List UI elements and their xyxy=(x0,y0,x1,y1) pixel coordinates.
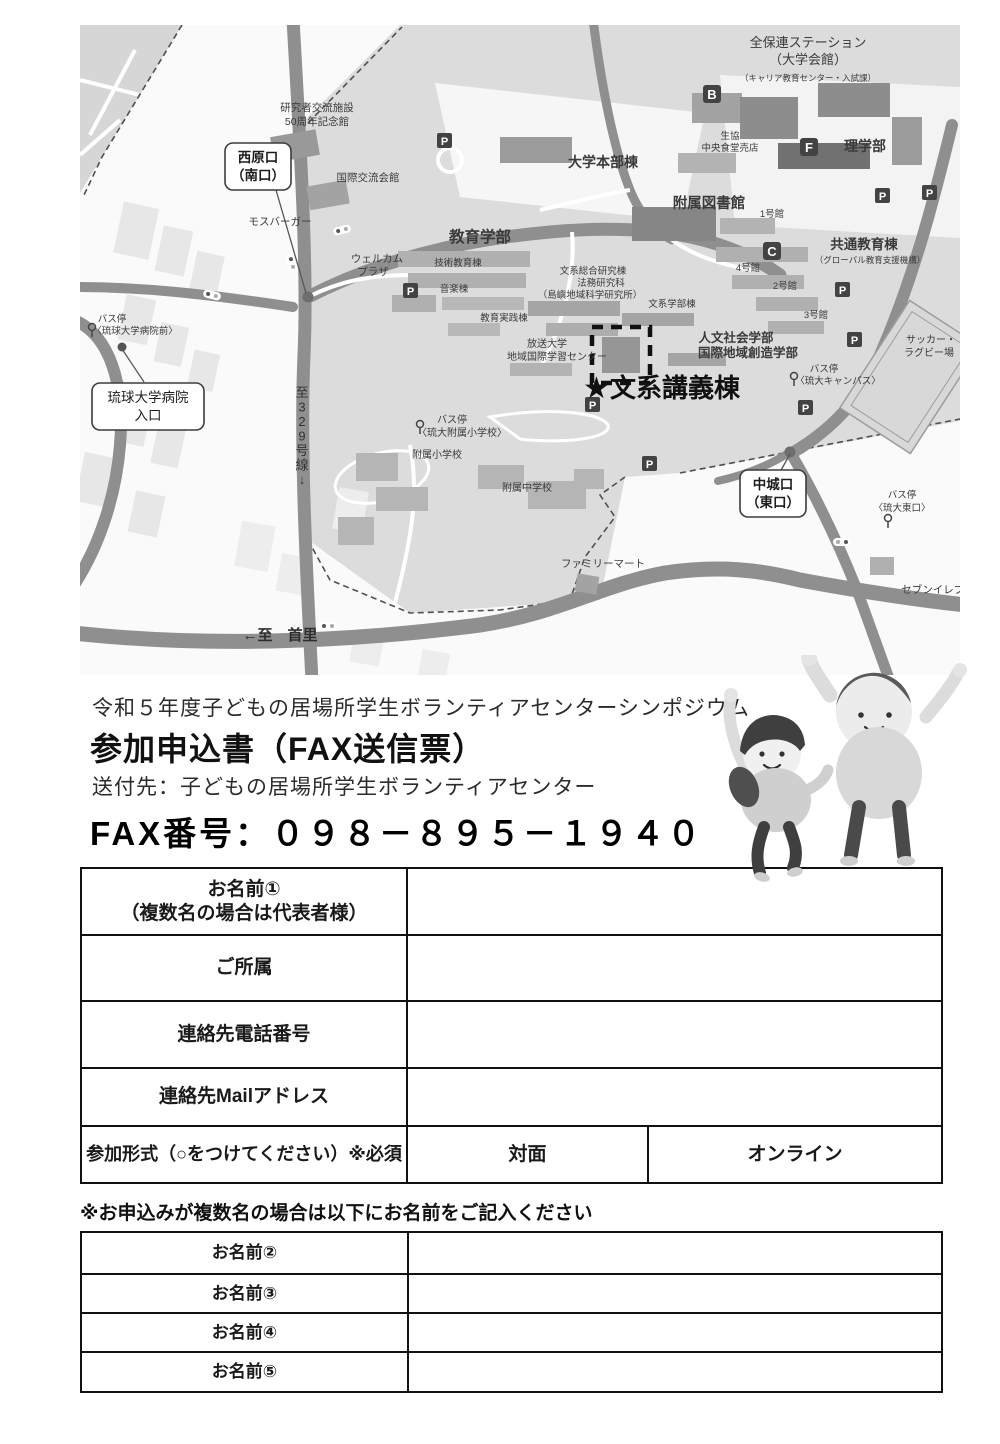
input-cell-name3[interactable] xyxy=(409,1275,941,1312)
svg-text:P: P xyxy=(926,188,933,200)
map-label: プラザ xyxy=(357,266,389,278)
map-label: 国際地域創造学部 xyxy=(698,345,799,360)
svg-text:西原口: 西原口 xyxy=(238,150,279,165)
svg-text:C: C xyxy=(767,244,777,259)
table-row: お名前③ xyxy=(82,1273,941,1312)
parking-icon: P xyxy=(403,283,418,298)
map-label: 共通教育棟 xyxy=(830,236,898,252)
map-label: 教育学部 xyxy=(449,227,512,246)
map-label: 附属小学校 xyxy=(412,448,462,461)
svg-text:（南口）: （南口） xyxy=(231,167,285,183)
map-label: 中央食堂売店 xyxy=(701,142,758,154)
gate-label-box: 琉球大学病院入口 xyxy=(92,383,204,430)
svg-text:P: P xyxy=(851,335,858,347)
map-label: 2号館 xyxy=(773,280,797,292)
venue-building xyxy=(602,337,640,373)
campus-access-map: 全保連ステーション（大学会館）（キャリア教育センター・入試課）理学部生協中央食堂… xyxy=(80,25,960,675)
table-row: お名前② xyxy=(82,1233,941,1273)
map-label: 文系総合研究棟 xyxy=(560,265,627,277)
field-label-name4: お名前④ xyxy=(82,1314,409,1351)
map-label: 〈琉大キャンパス〉 xyxy=(795,375,881,387)
table-row: 連絡先電話番号 xyxy=(82,1000,941,1067)
children-illustration xyxy=(712,655,970,887)
svg-text:P: P xyxy=(802,403,809,415)
map-label: 附属図書館 xyxy=(673,194,746,212)
map-label: 〈琉球大学病院前〉 xyxy=(92,325,178,337)
map-label: 研究者交流施設 xyxy=(280,101,354,114)
map-label: バス停 xyxy=(98,313,127,325)
parking-icon: P xyxy=(875,188,890,203)
map-label: （島嶼地域科学研究所） xyxy=(538,289,643,301)
svg-text:F: F xyxy=(805,140,813,155)
field-label-name1: お名前① （複数名の場合は代表者様） xyxy=(82,869,408,934)
field-label-participation: 参加形式（○をつけてください）※必須 xyxy=(82,1127,408,1182)
table-row: お名前④ xyxy=(82,1312,941,1351)
input-cell-name5[interactable] xyxy=(409,1353,941,1391)
input-cell-phone[interactable] xyxy=(408,1002,941,1067)
table-row: 参加形式（○をつけてください）※必須 対面 オンライン xyxy=(82,1125,941,1182)
map-label: サッカー・ xyxy=(906,334,956,346)
multiple-names-note: ※お申込みが複数名の場合は以下にお名前をご記入ください xyxy=(80,1198,592,1225)
map-label: ウェルカム xyxy=(351,253,403,265)
map-label: 教育実践棟 xyxy=(480,312,528,324)
building-marker-b-icon: B xyxy=(703,85,721,103)
parking-icon: P xyxy=(798,400,813,415)
option-online[interactable]: オンライン xyxy=(649,1127,941,1182)
map-label: （大学会館） xyxy=(769,52,847,67)
field-label-mail: 連絡先Mailアドレス xyxy=(82,1069,408,1125)
svg-text:P: P xyxy=(407,286,414,298)
input-cell-mail[interactable] xyxy=(408,1069,941,1125)
map-label: 〈琉大附属小学校〉 xyxy=(417,426,507,439)
map-label: 理学部 xyxy=(844,138,886,154)
field-label-name2: お名前② xyxy=(82,1233,409,1273)
map-label: バス停 xyxy=(437,413,467,426)
svg-text:（東口）: （東口） xyxy=(746,494,800,510)
junction-dot xyxy=(303,292,314,303)
map-label: 4号館 xyxy=(736,262,760,274)
svg-text:P: P xyxy=(839,285,846,297)
table-row: ご所属 xyxy=(82,934,941,1000)
input-cell-name2[interactable] xyxy=(409,1233,941,1273)
map-label: 大学本部棟 xyxy=(568,154,639,170)
map-label: 放送大学 xyxy=(527,337,567,350)
building-marker-c-icon: C xyxy=(763,242,781,260)
map-label: バス停 xyxy=(810,363,839,375)
application-table: お名前① （複数名の場合は代表者様） ご所属 連絡先電話番号 連絡先Mailアド… xyxy=(80,867,943,1184)
input-cell-affiliation[interactable] xyxy=(408,936,941,1000)
venue-label: 文系講義棟 xyxy=(610,373,741,403)
map-label: セブンイレブン xyxy=(901,583,960,596)
additional-names-table: お名前② お名前③ お名前④ お名前⑤ xyxy=(80,1231,943,1393)
field-label-name5: お名前⑤ xyxy=(82,1353,409,1391)
map-label: 1号館 xyxy=(760,208,784,220)
map-label: 全保連ステーション xyxy=(750,35,867,50)
gate-label-box: 西原口（南口） xyxy=(225,143,291,190)
map-label: 文系学部棟 xyxy=(648,298,696,310)
option-in-person[interactable]: 対面 xyxy=(408,1127,649,1182)
fax-number: FAX番号：０９８－８９５－１９４０ xyxy=(90,807,703,855)
venue-star-icon: ★ xyxy=(583,372,610,405)
map-label: 国際交流会館 xyxy=(337,171,400,184)
map-label: バス停 xyxy=(888,489,917,501)
map-label: （グローバル教育支援機構） xyxy=(815,255,925,265)
table-row: お名前⑤ xyxy=(82,1351,941,1391)
table-row: お名前① （複数名の場合は代表者様） xyxy=(82,869,941,934)
form-title: 参加申込書（FAX送信票） xyxy=(90,724,485,770)
map-label: （キャリア教育センター・入試課） xyxy=(740,73,876,83)
map-label: 3号館 xyxy=(804,309,828,321)
junction-dot xyxy=(785,447,796,458)
gate-label-box: 中城口（東口） xyxy=(740,470,806,517)
map-label: ラグビー場 xyxy=(904,346,954,359)
svg-text:入口: 入口 xyxy=(135,408,162,423)
map-label: ←至 首里 xyxy=(242,626,317,644)
svg-text:中城口: 中城口 xyxy=(753,476,794,492)
field-label-affiliation: ご所属 xyxy=(82,936,408,1000)
map-label: 技術教育棟 xyxy=(434,257,482,269)
event-title-line: 令和５年度子どもの居場所学生ボランティアセンターシンポジウム xyxy=(92,692,750,722)
input-cell-name4[interactable] xyxy=(409,1314,941,1351)
parking-icon: P xyxy=(437,133,452,148)
map-label: 生協 xyxy=(720,130,739,142)
map-label: 法務研究科 xyxy=(577,277,625,289)
parking-icon: P xyxy=(922,185,937,200)
svg-text:琉球大学病院: 琉球大学病院 xyxy=(108,390,189,405)
svg-text:P: P xyxy=(441,136,448,148)
recipient-line: 送付先：子どもの居場所学生ボランティアセンター xyxy=(92,771,596,801)
map-label: 50周年記念館 xyxy=(285,115,349,128)
building-marker-f-icon: F xyxy=(800,138,818,156)
parking-icon: P xyxy=(835,282,850,297)
parking-icon: P xyxy=(642,456,657,471)
hospital-busstop-dot xyxy=(118,343,127,352)
tall-kid xyxy=(801,655,967,866)
map-label: 地域国際学習センター xyxy=(507,350,607,363)
parking-icon: P xyxy=(847,332,862,347)
field-label-phone: 連絡先電話番号 xyxy=(82,1002,408,1067)
map-label: 附属中学校 xyxy=(502,481,552,494)
map-label: 音楽棟 xyxy=(440,283,469,295)
fax-application-page: { "header": { "event_line": "令和５年度子どもの居場… xyxy=(0,0,1000,1444)
input-cell-name1[interactable] xyxy=(408,869,941,934)
field-label-name3: お名前③ xyxy=(82,1275,409,1312)
svg-text:B: B xyxy=(707,87,716,102)
map-label: モスバーガー xyxy=(249,216,312,228)
svg-text:P: P xyxy=(646,459,653,471)
map-label: 〈琉大東口〉 xyxy=(873,502,930,514)
svg-text:P: P xyxy=(879,191,886,203)
map-label: ファミリーマート xyxy=(561,558,645,570)
table-row: 連絡先Mailアドレス xyxy=(82,1067,941,1125)
map-label: 人文社会学部 xyxy=(698,330,774,345)
